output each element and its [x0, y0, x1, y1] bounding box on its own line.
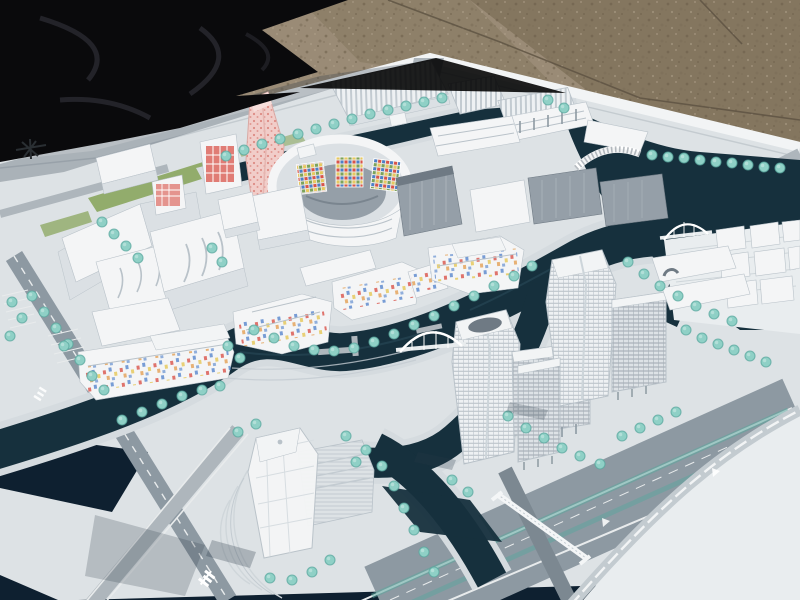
photo-of-architecture-model: [0, 0, 800, 600]
model-scene: [0, 0, 800, 600]
